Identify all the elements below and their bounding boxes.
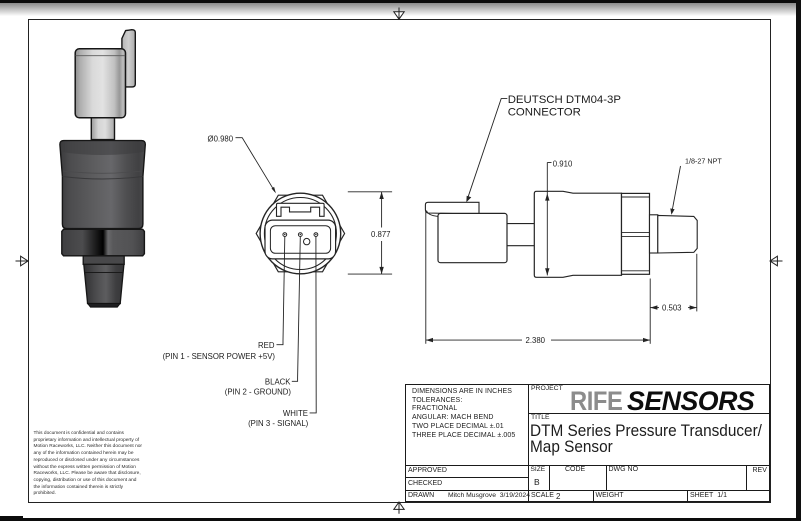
- svg-text:Ø0.980: Ø0.980: [208, 134, 234, 143]
- svg-text:0.910: 0.910: [553, 159, 573, 168]
- svg-text:0.503: 0.503: [662, 304, 682, 313]
- svg-text:CONNECTOR: CONNECTOR: [508, 107, 581, 119]
- svg-text:(PIN 2 - GROUND): (PIN 2 - GROUND): [225, 388, 292, 397]
- svg-text:0.877: 0.877: [371, 230, 391, 239]
- svg-text:BLACK: BLACK: [265, 378, 291, 387]
- svg-text:DEUTSCH DTM04-3P: DEUTSCH DTM04-3P: [508, 94, 621, 106]
- svg-text:RED: RED: [258, 341, 275, 350]
- svg-text:(PIN 1 - SENSOR POWER +5V): (PIN 1 - SENSOR POWER +5V): [163, 352, 276, 361]
- svg-text:1/8-27 NPT: 1/8-27 NPT: [685, 157, 722, 166]
- svg-text:(PIN 3 - SIGNAL): (PIN 3 - SIGNAL): [248, 419, 309, 428]
- svg-text:2.380: 2.380: [526, 336, 546, 345]
- svg-text:WHITE: WHITE: [283, 409, 308, 418]
